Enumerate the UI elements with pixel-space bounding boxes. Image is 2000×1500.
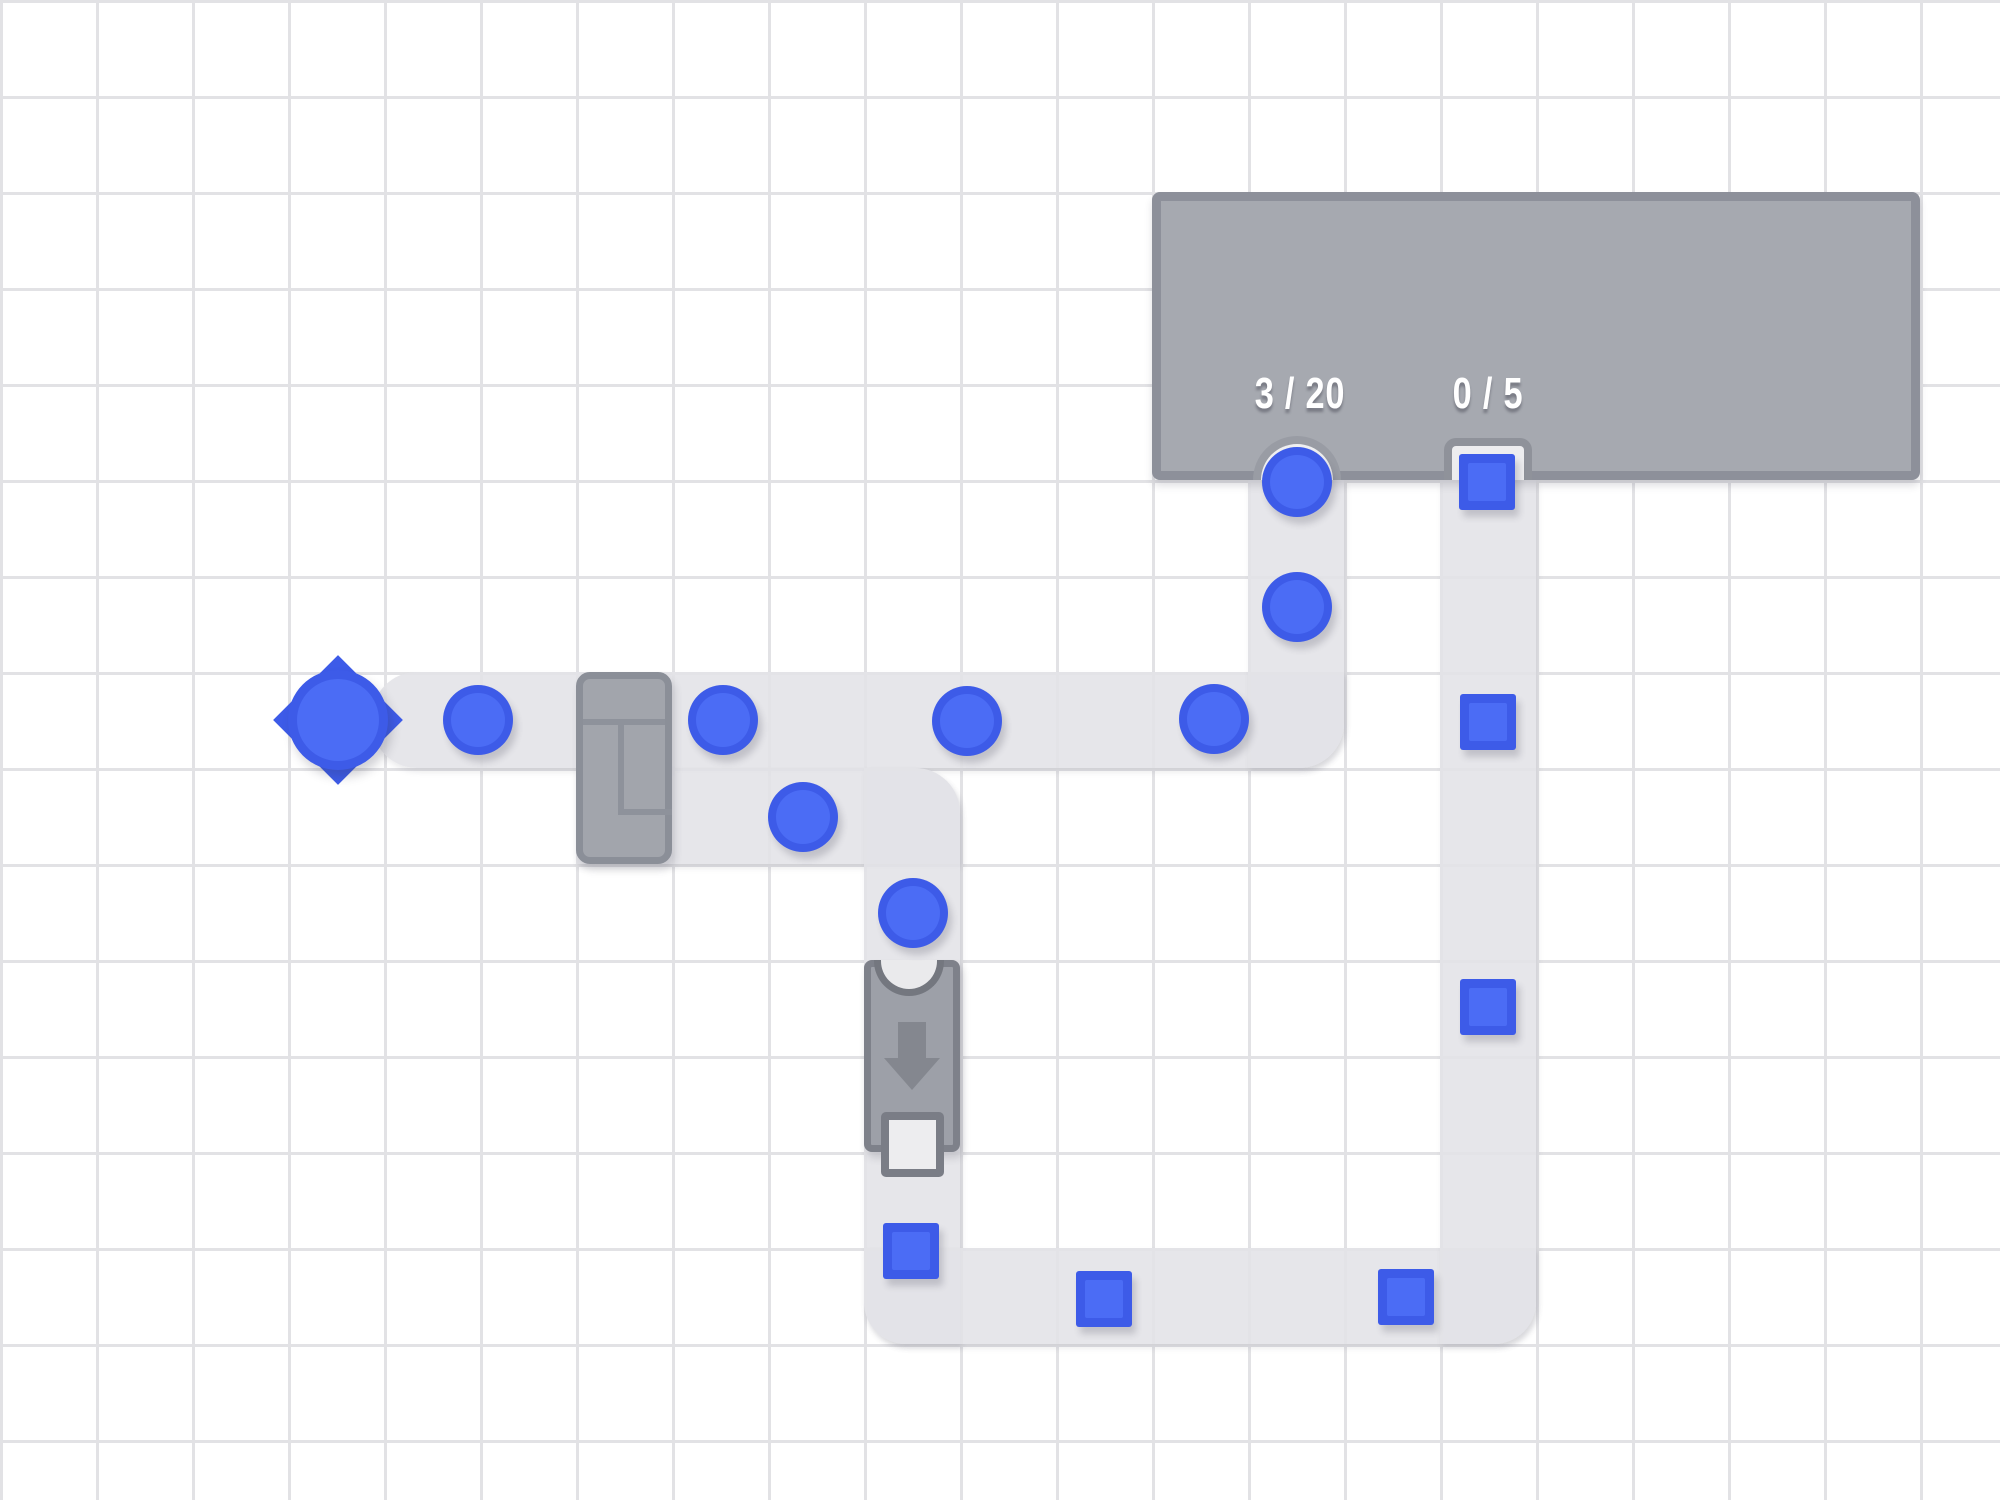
square-item: [1460, 694, 1516, 750]
circle-item: [1262, 447, 1332, 517]
conveyor-belt[interactable]: [864, 1248, 1536, 1344]
converter-output-port: [881, 1112, 944, 1177]
circle-item: [1262, 572, 1332, 642]
circle-item: [932, 686, 1002, 756]
circle-item: [443, 685, 513, 755]
node-core-inner: [297, 679, 379, 761]
square-item: [883, 1223, 939, 1279]
game-board[interactable]: 3 / 20 0 / 5: [0, 0, 2000, 1500]
converter-intake-notch: [874, 960, 944, 996]
conveyor-belt[interactable]: [1440, 480, 1536, 1344]
splitter-machine[interactable]: [576, 672, 672, 864]
circle-item: [768, 782, 838, 852]
square-item: [1076, 1271, 1132, 1327]
square-item: [1378, 1269, 1434, 1325]
square-item: [1460, 979, 1516, 1035]
splitter-chute-bottom-line: [618, 809, 672, 815]
splitter-divider-line: [583, 719, 665, 725]
square-item: [1459, 454, 1515, 510]
down-arrow-icon: [898, 1022, 926, 1058]
splitter-chute-left-line: [618, 719, 624, 815]
square-delivery-counter: 0 / 5: [1453, 372, 1524, 416]
circle-delivery-counter: 3 / 20: [1255, 372, 1346, 416]
down-arrow-icon: [884, 1058, 940, 1090]
circle-item: [1179, 684, 1249, 754]
hub-building[interactable]: 3 / 20 0 / 5: [1152, 192, 1920, 480]
converter-machine[interactable]: [864, 960, 960, 1152]
circle-item: [688, 685, 758, 755]
circle-item: [878, 878, 948, 948]
